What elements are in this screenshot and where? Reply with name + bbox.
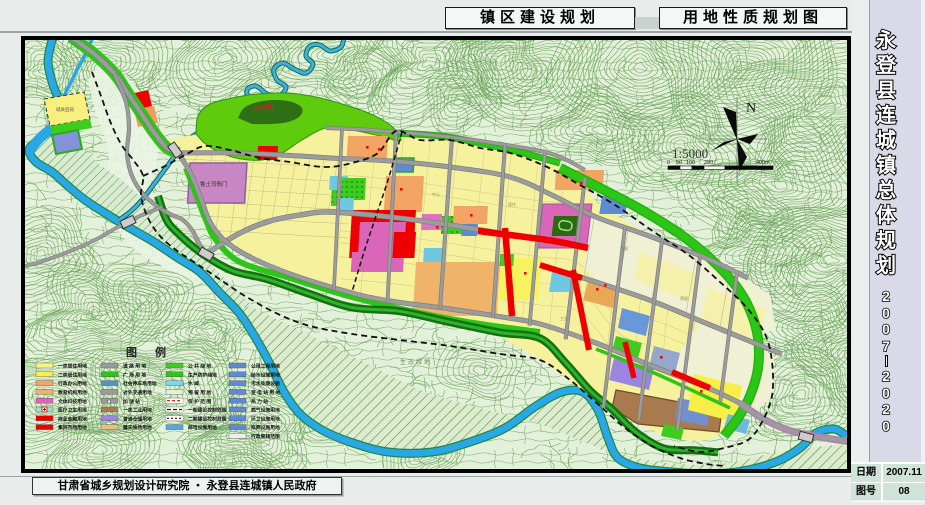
svg-text:保 护 范 围: 保 护 范 围	[187, 398, 211, 405]
svg-text:文体科技用地: 文体科技用地	[58, 398, 87, 405]
svg-text:广 场 用 地: 广 场 用 地	[123, 371, 146, 378]
svg-text:社会停车场用地: 社会停车场用地	[122, 380, 157, 387]
svg-text:热 力 站: 热 力 站	[251, 398, 268, 405]
svg-text:邮电设施用地: 邮电设施用地	[188, 424, 217, 431]
svg-text:1:5000: 1:5000	[672, 146, 708, 161]
svg-text:工业: 工业	[560, 315, 568, 321]
svg-text:预留: 预留	[620, 245, 628, 251]
svg-text:一期建设控制范围: 一期建设控制范围	[188, 407, 227, 414]
svg-text:水 域: 水 域	[187, 380, 199, 387]
svg-text:集贸市场用地: 集贸市场用地	[57, 424, 87, 431]
svg-text:一类居住用地: 一类居住用地	[58, 363, 87, 370]
svg-text:给水设施用地: 给水设施用地	[251, 371, 280, 378]
svg-text:露天堆场用地: 露天堆场用地	[123, 424, 152, 431]
svg-text:200: 200	[704, 160, 713, 166]
svg-text:普通仓储用地: 普通仓储用地	[123, 415, 152, 422]
svg-text:N: N	[746, 101, 756, 116]
svg-text:400m: 400m	[756, 160, 770, 166]
svg-text:道 路 用 地: 道 路 用 地	[123, 363, 146, 370]
svg-text:城关监狱: 城关监狱	[56, 106, 74, 113]
svg-text:污水处理设施: 污水处理设施	[251, 380, 280, 387]
svg-text:生产防护绿地: 生产防护绿地	[188, 371, 217, 378]
svg-text:0: 0	[667, 160, 670, 166]
svg-text:50: 50	[676, 160, 682, 166]
svg-text:一类工业用地: 一类工业用地	[123, 407, 152, 414]
svg-text:二类居住用地: 二类居住用地	[58, 371, 87, 378]
svg-text:教育机构用地: 教育机构用地	[57, 389, 87, 396]
svg-text:加 油 站: 加 油 站	[122, 398, 140, 405]
svg-text:公用工程用地: 公用工程用地	[251, 363, 280, 370]
svg-text:居住: 居住	[508, 201, 516, 207]
svg-text:公 共 绿 地: 公 共 绿 地	[188, 363, 211, 370]
svg-text:预留: 预留	[680, 295, 688, 301]
svg-text:仓储: 仓储	[660, 405, 668, 411]
svg-text:预 留 用 地: 预 留 用 地	[188, 389, 211, 396]
svg-text:殡葬设施用地: 殡葬设施用地	[251, 424, 280, 431]
svg-text:环卫设施用地: 环卫设施用地	[251, 415, 280, 422]
svg-text:医疗卫生用地: 医疗卫生用地	[58, 407, 87, 414]
svg-text:对外交通用地: 对外交通用地	[123, 389, 152, 396]
svg-text:行政管辖范围: 行政管辖范围	[250, 433, 280, 440]
svg-text:燃气设施用地: 燃气设施用地	[251, 407, 280, 414]
svg-text:商业金融用地: 商业金融用地	[58, 415, 87, 422]
svg-text:二期建设控制范围: 二期建设控制范围	[188, 415, 227, 422]
svg-text:森林公园: 森林公园	[254, 105, 274, 112]
svg-text:100: 100	[686, 160, 695, 166]
svg-text:鲁土司衙门: 鲁土司衙门	[200, 180, 228, 188]
svg-text:图例: 图例	[126, 345, 184, 359]
svg-text:变 电 站 用 地: 变 电 站 用 地	[251, 389, 281, 396]
svg-text:生态绿地: 生态绿地	[400, 358, 432, 366]
svg-text:行政办公用地: 行政办公用地	[57, 380, 87, 387]
svg-text:中心: 中心	[432, 191, 440, 197]
